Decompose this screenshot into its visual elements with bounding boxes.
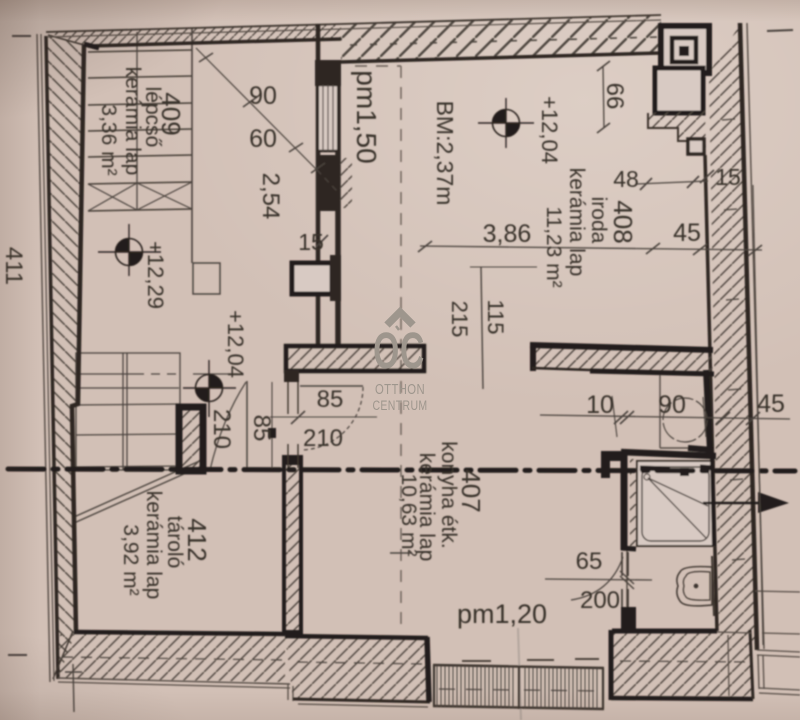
svg-text:90: 90 xyxy=(249,82,277,110)
svg-text:konyha étk.: konyha étk. xyxy=(437,441,460,548)
svg-text:85: 85 xyxy=(317,386,344,413)
svg-text:10,63 m²: 10,63 m² xyxy=(397,474,420,557)
svg-text:+12,04: +12,04 xyxy=(537,96,562,164)
svg-text:pm1,50: pm1,50 xyxy=(351,70,382,163)
svg-text:115: 115 xyxy=(483,299,508,334)
svg-text:3,92 m²: 3,92 m² xyxy=(119,524,142,595)
svg-text:kerámia lap: kerámia lap xyxy=(142,491,165,600)
svg-text:210: 210 xyxy=(303,425,343,452)
svg-text:15: 15 xyxy=(298,229,324,255)
svg-text:+12,29: +12,29 xyxy=(143,241,168,309)
svg-text:+12,04: +12,04 xyxy=(223,310,248,378)
svg-text:10: 10 xyxy=(586,391,614,419)
svg-text:408: 408 xyxy=(608,200,638,243)
svg-text:tároló: tároló xyxy=(163,516,186,569)
svg-text:iroda: iroda xyxy=(587,197,610,244)
svg-text:CENTRUM: CENTRUM xyxy=(372,398,427,414)
svg-text:411: 411 xyxy=(0,247,27,285)
svg-text:210: 210 xyxy=(208,409,235,449)
svg-text:3,86: 3,86 xyxy=(483,220,532,248)
svg-text:45: 45 xyxy=(673,219,701,247)
svg-text:OC: OC xyxy=(373,323,425,380)
svg-text:85: 85 xyxy=(248,415,275,442)
svg-text:OTTHON: OTTHON xyxy=(375,381,425,398)
svg-text:48: 48 xyxy=(613,166,639,192)
svg-text:pm1,20: pm1,20 xyxy=(457,599,547,629)
svg-text:215: 215 xyxy=(447,301,472,338)
svg-text:3,36 m²: 3,36 m² xyxy=(97,104,120,175)
svg-text:kerámia lap: kerámia lap xyxy=(121,67,144,176)
svg-text:2,54: 2,54 xyxy=(257,173,284,220)
svg-text:15: 15 xyxy=(715,164,741,190)
svg-text:90: 90 xyxy=(658,391,686,419)
svg-text:60: 60 xyxy=(249,125,277,153)
svg-text:200: 200 xyxy=(580,587,620,614)
svg-text:45: 45 xyxy=(757,390,785,418)
svg-text:BM:2,37m: BM:2,37m xyxy=(432,101,458,206)
svg-text:66: 66 xyxy=(601,83,628,110)
svg-text:kerámia lap: kerámia lap xyxy=(565,168,588,277)
svg-text:65: 65 xyxy=(576,548,603,575)
svg-text:11,23 m²: 11,23 m² xyxy=(542,206,565,287)
